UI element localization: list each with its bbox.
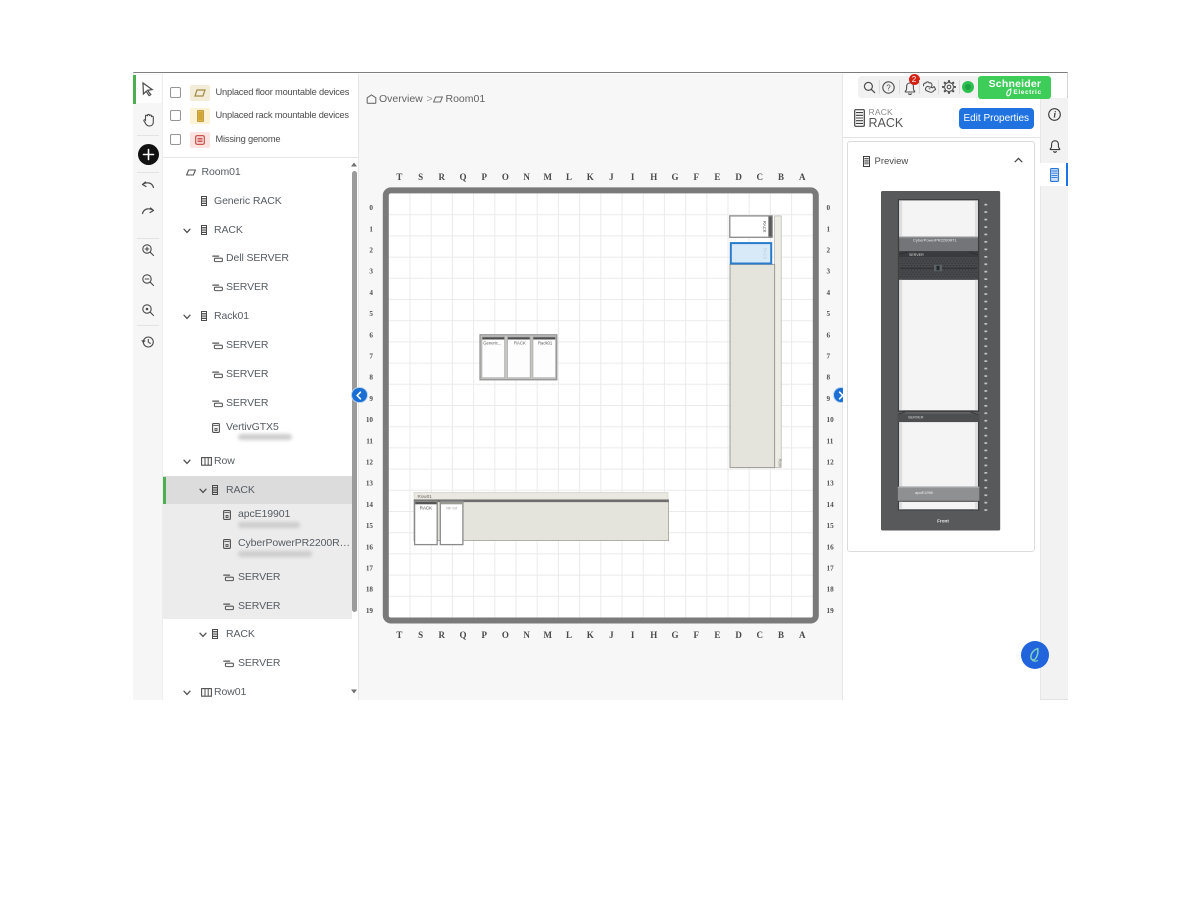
svg-text:R: R	[439, 630, 446, 640]
svg-text:15: 15	[827, 522, 835, 530]
svg-text:K: K	[587, 172, 594, 182]
svg-text:3: 3	[369, 268, 373, 276]
svg-text:H: H	[650, 630, 657, 640]
svg-text:J: J	[609, 630, 614, 640]
svg-text:apcE1990: apcE1990	[915, 489, 934, 494]
svg-text:Q: Q	[459, 630, 466, 640]
svg-text:1: 1	[369, 225, 373, 233]
svg-text:15: 15	[366, 522, 374, 530]
svg-text:8: 8	[369, 374, 373, 382]
svg-text:D: D	[735, 172, 742, 182]
svg-text:E: E	[714, 630, 720, 640]
svg-text:B: B	[778, 630, 784, 640]
svg-text:10: 10	[827, 416, 835, 424]
svg-text:6: 6	[827, 331, 831, 339]
svg-text:RF Inf: RF Inf	[446, 506, 457, 510]
svg-text:S: S	[418, 172, 423, 182]
svg-text:M: M	[544, 172, 553, 182]
svg-text:9: 9	[827, 395, 831, 403]
svg-text:T: T	[396, 630, 402, 640]
svg-text:B: B	[778, 172, 784, 182]
svg-text:16: 16	[366, 543, 374, 551]
svg-text:L: L	[566, 172, 572, 182]
svg-text:2: 2	[827, 247, 831, 255]
svg-text:M: M	[544, 630, 553, 640]
svg-text:?: ?	[886, 83, 891, 92]
svg-text:3: 3	[827, 268, 831, 276]
svg-text:RACK: RACK	[420, 506, 432, 511]
svg-text:12: 12	[827, 459, 835, 467]
svg-text:11: 11	[366, 437, 373, 445]
svg-text:5: 5	[369, 310, 373, 318]
svg-text:SERVER: SERVER	[909, 253, 924, 257]
svg-text:P: P	[481, 172, 487, 182]
svg-text:R: R	[439, 172, 446, 182]
svg-text:1: 1	[827, 225, 831, 233]
svg-text:i: i	[1053, 109, 1056, 119]
svg-text:0: 0	[369, 204, 373, 212]
svg-text:7: 7	[369, 353, 373, 361]
svg-text:9: 9	[369, 395, 373, 403]
svg-text:18: 18	[827, 586, 835, 594]
svg-text:P: P	[481, 630, 487, 640]
svg-text:19: 19	[827, 607, 835, 615]
svg-text:K: K	[587, 630, 594, 640]
svg-text:Front: Front	[937, 518, 949, 523]
svg-text:Row: Row	[778, 459, 783, 468]
svg-text:18: 18	[366, 586, 374, 594]
svg-text:G: G	[671, 172, 678, 182]
svg-text:E: E	[714, 172, 720, 182]
svg-text:7: 7	[827, 353, 831, 361]
svg-text:4: 4	[369, 289, 373, 297]
svg-text:N: N	[523, 630, 530, 640]
svg-text:17: 17	[827, 565, 835, 573]
svg-text:F: F	[693, 630, 699, 640]
svg-text:A: A	[799, 172, 806, 182]
svg-text:Q: Q	[459, 172, 466, 182]
svg-text:O: O	[502, 172, 509, 182]
svg-text:CyberPowerPR2200RTL: CyberPowerPR2200RTL	[913, 237, 958, 242]
svg-text:Rack01: Rack01	[538, 341, 553, 346]
svg-text:17: 17	[366, 565, 374, 573]
svg-text:T: T	[396, 172, 402, 182]
svg-text:I: I	[631, 630, 635, 640]
svg-text:5: 5	[827, 310, 831, 318]
svg-text:N: N	[523, 172, 530, 182]
svg-text:19: 19	[366, 607, 374, 615]
svg-text:0: 0	[827, 204, 831, 212]
svg-text:SERVER: SERVER	[908, 415, 924, 419]
svg-text:I: I	[631, 172, 635, 182]
svg-text:H: H	[650, 172, 657, 182]
svg-text:Generic...: Generic...	[483, 341, 501, 346]
svg-text:A: A	[799, 630, 806, 640]
svg-text:14: 14	[366, 501, 374, 509]
svg-text:Row01: Row01	[418, 494, 433, 499]
svg-text:RACK: RACK	[762, 248, 767, 260]
svg-text:14: 14	[827, 501, 835, 509]
svg-text:6: 6	[369, 331, 373, 339]
svg-text:11: 11	[827, 437, 834, 445]
svg-text:C: C	[757, 630, 764, 640]
svg-text:D: D	[735, 630, 742, 640]
svg-text:16: 16	[827, 543, 835, 551]
svg-text:10: 10	[366, 416, 374, 424]
svg-text:13: 13	[366, 480, 374, 488]
svg-text:J: J	[609, 172, 614, 182]
svg-text:4: 4	[827, 289, 831, 297]
svg-text:13: 13	[827, 480, 835, 488]
svg-text:RACK: RACK	[762, 221, 767, 233]
svg-text:RACK: RACK	[514, 341, 526, 346]
svg-text:2: 2	[369, 247, 373, 255]
svg-text:G: G	[671, 630, 678, 640]
svg-text:12: 12	[366, 459, 374, 467]
svg-text:F: F	[693, 172, 699, 182]
svg-text:L: L	[566, 630, 572, 640]
svg-text:C: C	[757, 172, 764, 182]
svg-text:S: S	[418, 630, 423, 640]
svg-text:O: O	[502, 630, 509, 640]
svg-text:8: 8	[827, 374, 831, 382]
